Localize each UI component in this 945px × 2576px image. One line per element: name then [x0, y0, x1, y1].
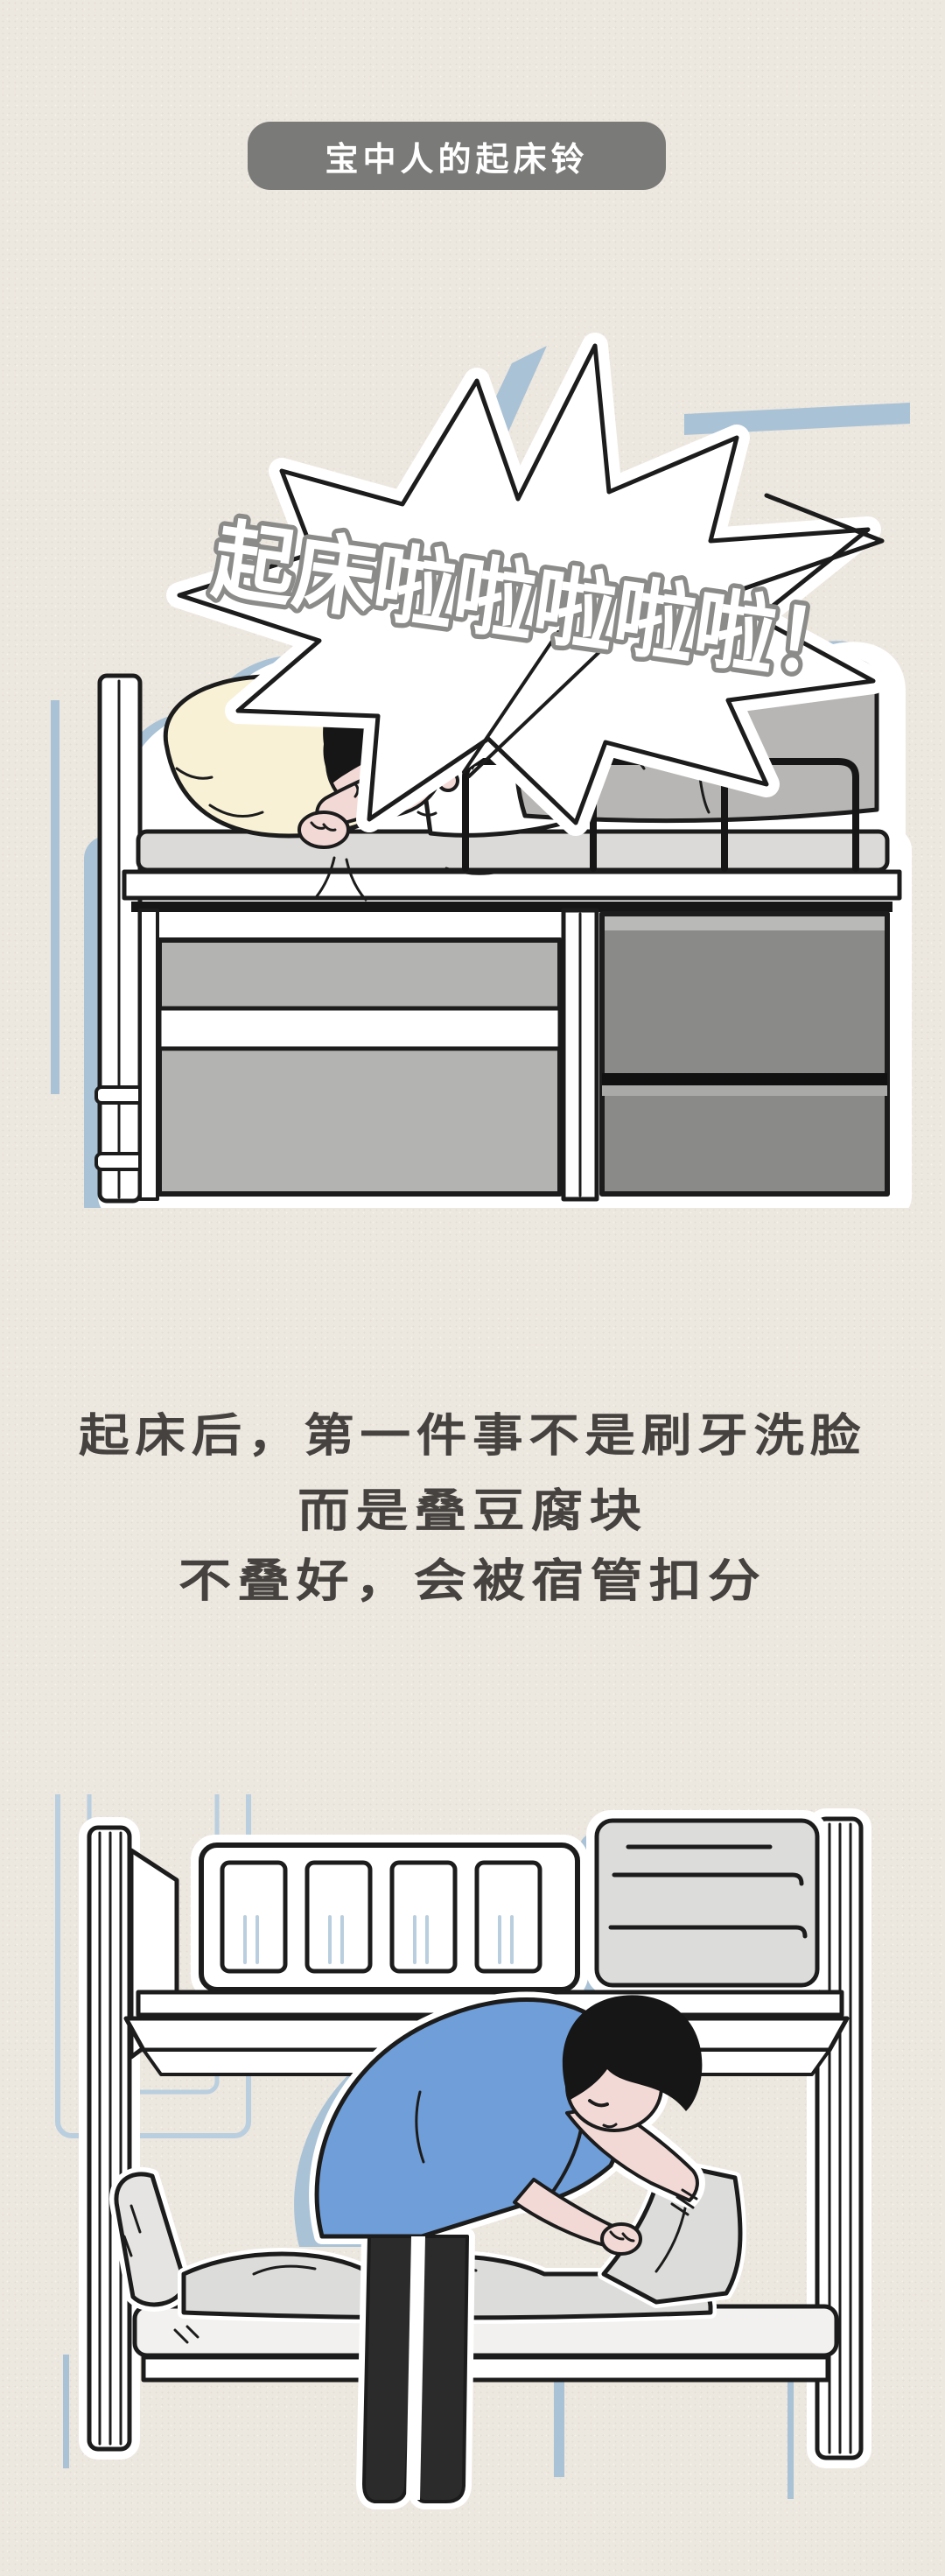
right-panel-stripe-light [602, 1085, 887, 1096]
lower-bunk-bar [143, 2357, 828, 2380]
under-bunk-left-panel [159, 940, 560, 1194]
fist [299, 812, 348, 847]
title-badge: 宝中人的起床铃 [248, 122, 666, 190]
bed-frame-bar [131, 902, 892, 912]
right-panel-stripe [602, 1073, 887, 1085]
caption-line-2: 而是叠豆腐块 [297, 1485, 647, 1538]
caption-line-1: 起床后，第一件事不是刷牙洗脸 [79, 1410, 866, 1463]
comic-page: 宝中人的起床铃 [0, 0, 945, 2576]
top-bunk-mattress [138, 832, 887, 870]
bed-frame-plank [124, 872, 899, 898]
comic-panel-folding-quilt [44, 1794, 901, 2565]
under-bunk-crossbar [159, 1008, 560, 1049]
title-badge-label: 宝中人的起床铃 [325, 132, 588, 180]
right-panel-top-strip [605, 916, 885, 930]
caption-block: 起床后，第一件事不是刷牙洗脸 而是叠豆腐块 不叠好，会被宿管扣分 [0, 1399, 945, 1626]
bed-inner-post [140, 910, 157, 1199]
comic-panel-sleeping-student: 起床啦啦啦啦啦！ [35, 333, 919, 1208]
under-bunk-right-panel [602, 914, 887, 1194]
caption-line-3: 不叠好，会被宿管扣分 [178, 1555, 766, 1608]
